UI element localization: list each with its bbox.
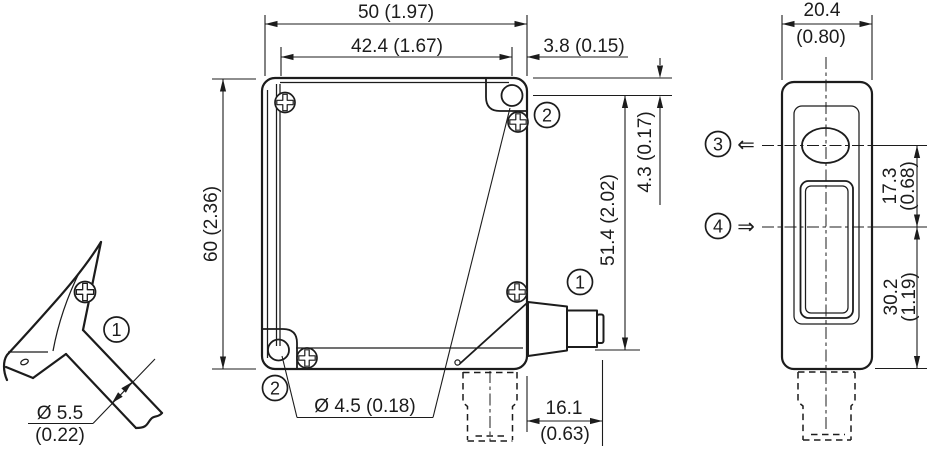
- drawing-canvas: 1 Ø 5.5 (0.22): [0, 0, 940, 449]
- marker-mounting-hole-bottom: 2: [263, 376, 288, 401]
- dimensional-drawing: 1 Ø 5.5 (0.22): [0, 0, 940, 449]
- dim-text-mm: Ø 5.5: [37, 403, 83, 424]
- m12-connector: [528, 302, 604, 356]
- marker-label: 1: [575, 273, 585, 293]
- housing-bottom-edge: [6, 367, 33, 378]
- marker-plug-connection: 1: [568, 270, 593, 295]
- lens-window-inner: [806, 186, 849, 313]
- dim-text-inch: (0.80): [796, 27, 846, 48]
- housing-inner-wall-curve: [53, 271, 80, 351]
- dim-hole-spacing-v: 51.4 (2.02): [595, 96, 640, 351]
- connector-base: [528, 302, 567, 356]
- housing-body: [262, 78, 527, 369]
- dim-axis-spacing: 17.3 (0.68): [872, 146, 927, 228]
- dim-text: 50 (1.97): [358, 2, 434, 23]
- arrowhead: [121, 382, 132, 393]
- marker-label: 1: [111, 320, 121, 340]
- sender-direction-arrow-icon: ⇐: [737, 133, 755, 157]
- cable-detail-view: 1 Ø 5.5 (0.22): [4, 242, 162, 446]
- screw-icon: [507, 282, 527, 302]
- dim-side-width: 20.4 (0.80): [782, 0, 872, 80]
- cable-break-end: [136, 413, 162, 428]
- dim-hole-spacing-h: 42.4 (1.67): [281, 36, 512, 76]
- dim-text: 3.8 (0.15): [543, 36, 624, 57]
- connector-tip: [597, 315, 604, 344]
- marker-receiver-axis: 4 ⇒: [706, 214, 755, 239]
- screw-icon: [275, 93, 295, 113]
- receiver-direction-arrow-icon: ⇒: [737, 215, 755, 239]
- gland-flange-edge: [33, 354, 66, 378]
- dim-cable-diameter: Ø 5.5 (0.22): [28, 359, 155, 446]
- screw-icon: [297, 348, 317, 368]
- dim-text: Ø 4.5 (0.18): [314, 396, 415, 417]
- marker-sender-axis: 3 ⇐: [706, 132, 755, 157]
- screw-icon: [75, 282, 96, 303]
- dim-text-inch: (1.19): [899, 272, 920, 322]
- dim-text: 42.4 (1.67): [351, 36, 443, 57]
- housing-chamfer-edge: [460, 303, 528, 364]
- connector-barrel: [567, 311, 597, 348]
- dim-text-mm: 16.1: [546, 398, 583, 419]
- dim-text-mm: 20.4: [804, 0, 841, 21]
- drain-hole: [455, 360, 460, 365]
- dim-text: 60 (2.36): [201, 186, 222, 262]
- marker-label: 2: [542, 106, 552, 126]
- screw-icon: [508, 112, 528, 132]
- marker-label: 3: [713, 135, 723, 155]
- marker-mounting-hole-top: 2: [535, 103, 560, 128]
- mounting-hole-bottom-left: [268, 340, 289, 361]
- dim-axis-to-bottom: 30.2 (1.19): [875, 227, 927, 369]
- side-view: 3 ⇐ 4 ⇒ 20.4 (0.80) 17.3 (0.68): [706, 0, 928, 440]
- dim-mounting-hole-dia: Ø 4.5 (0.18): [282, 108, 510, 418]
- dim-total-height: 60 (2.36): [201, 79, 256, 369]
- front-view: 1 2 2 50 (1.97) 42.4 (1.67): [201, 2, 672, 446]
- dim-text: 4.3 (0.17): [635, 111, 656, 192]
- small-detail-hole: [20, 358, 29, 366]
- dim-hole-edge-offset: 3.8 (0.15): [527, 36, 628, 60]
- marker-label: 2: [270, 379, 280, 399]
- dim-text-inch: (0.68): [898, 161, 919, 211]
- dim-connector-length: 16.1 (0.63): [527, 360, 603, 446]
- marker-label: 4: [713, 217, 723, 237]
- dim-text: 51.4 (2.02): [598, 174, 619, 266]
- plug-hidden-outline: [463, 371, 517, 441]
- dim-text-inch: (0.22): [35, 425, 85, 446]
- mounting-hole-top-right: [502, 85, 523, 106]
- lens-window-outer: [801, 181, 854, 318]
- dim-text-inch: (0.63): [540, 424, 590, 445]
- cable-upper-edge: [83, 330, 162, 413]
- marker-cable-connection: 1: [104, 317, 129, 342]
